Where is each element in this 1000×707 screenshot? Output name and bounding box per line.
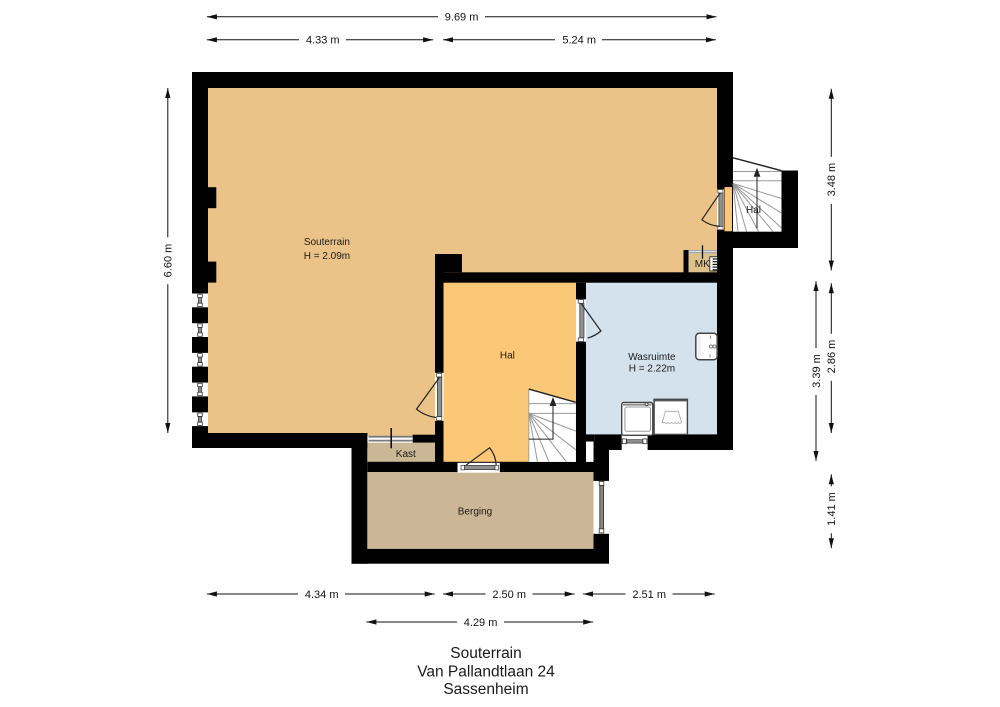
- svg-text:5.24 m: 5.24 m: [562, 35, 596, 47]
- svg-text:3.39 m: 3.39 m: [811, 354, 823, 388]
- svg-text:2.86 m: 2.86 m: [826, 340, 838, 374]
- svg-text:Berging: Berging: [458, 507, 492, 518]
- svg-text:Van Pallandtlaan 24: Van Pallandtlaan 24: [417, 664, 555, 681]
- svg-text:Hal: Hal: [500, 351, 515, 362]
- svg-text:9.69 m: 9.69 m: [445, 12, 479, 24]
- svg-text:MK: MK: [695, 259, 710, 270]
- svg-text:2.50 m: 2.50 m: [492, 589, 526, 601]
- svg-text:Wasruimte: Wasruimte: [628, 352, 676, 363]
- svg-text:4.33 m: 4.33 m: [306, 35, 340, 47]
- svg-text:3.48 m: 3.48 m: [826, 163, 838, 197]
- svg-text:4.34 m: 4.34 m: [305, 589, 339, 601]
- svg-text:Souterrain: Souterrain: [304, 237, 350, 248]
- svg-text:H = 2.22m: H = 2.22m: [629, 363, 675, 374]
- svg-text:H = 2.09m: H = 2.09m: [304, 251, 350, 262]
- svg-text:2.51 m: 2.51 m: [632, 589, 666, 601]
- svg-text:4.29 m: 4.29 m: [464, 617, 498, 629]
- svg-text:Hal: Hal: [746, 205, 761, 216]
- svg-text:Sassenheim: Sassenheim: [443, 681, 528, 698]
- svg-text:6.60 m: 6.60 m: [163, 244, 175, 278]
- svg-text:Kast: Kast: [396, 449, 416, 460]
- svg-text:1.41 m: 1.41 m: [826, 492, 838, 526]
- svg-text:Souterrain: Souterrain: [450, 645, 522, 662]
